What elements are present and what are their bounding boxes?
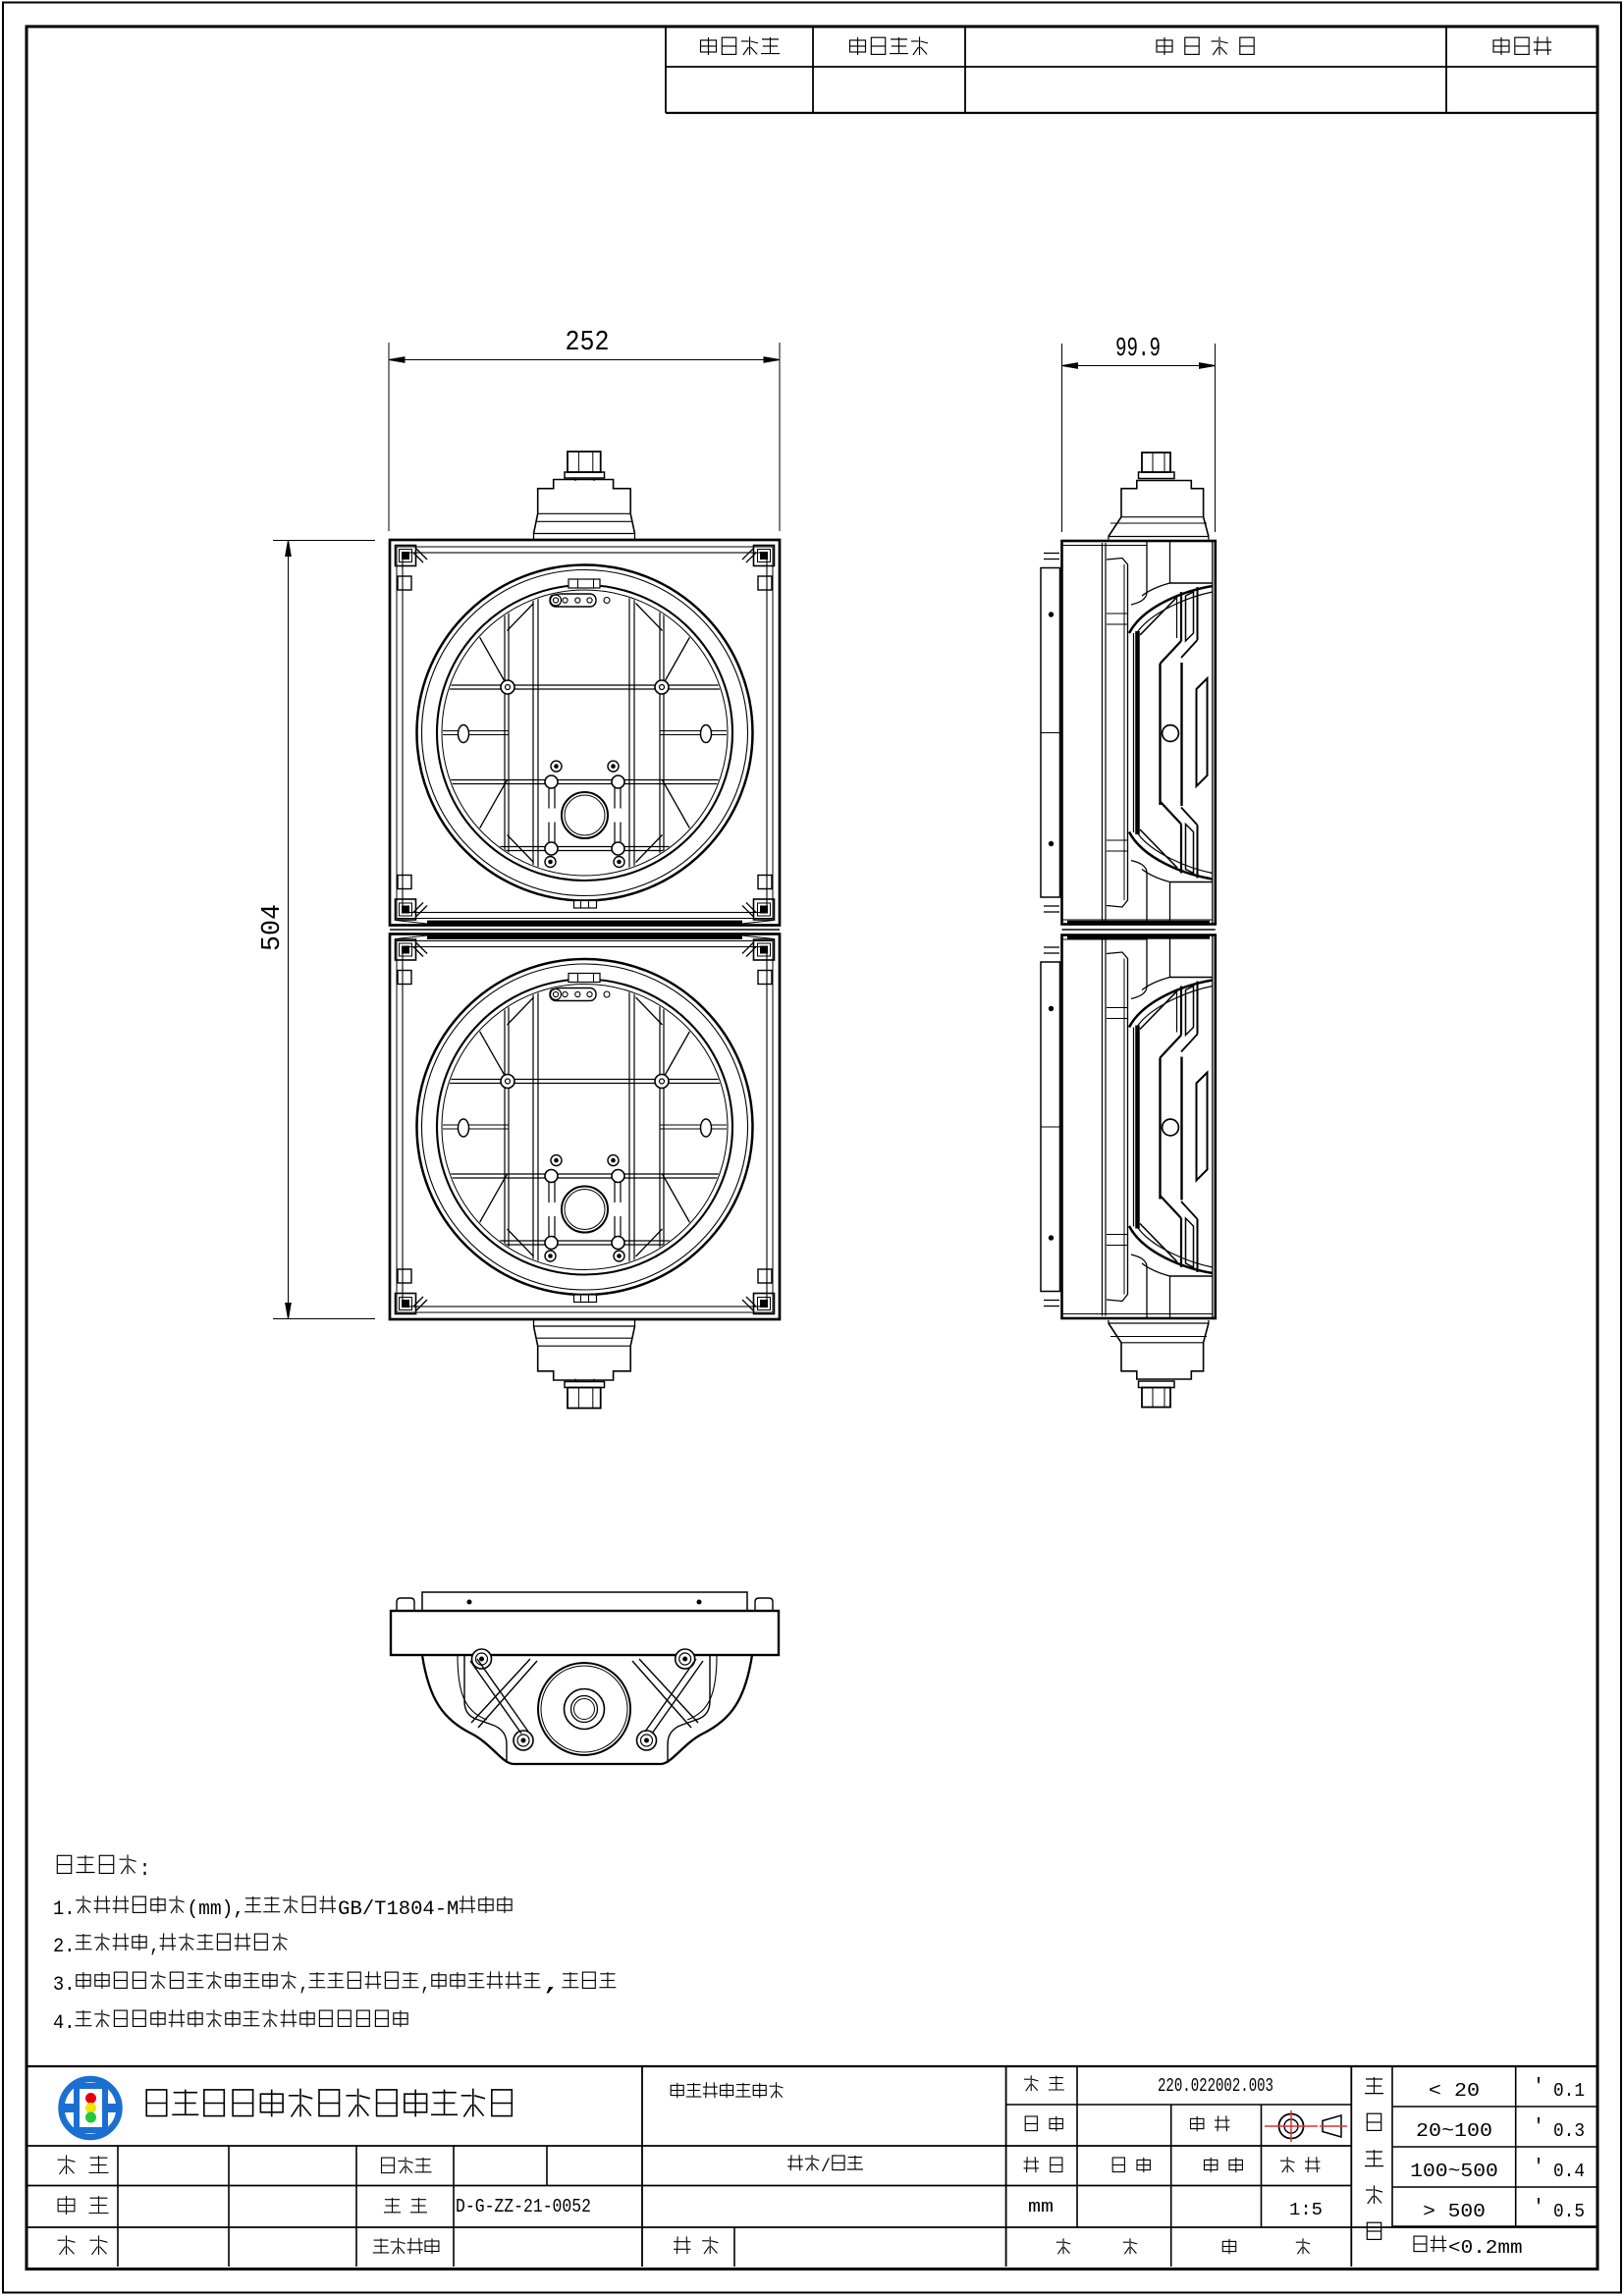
svg-text:1.: 1. (53, 1898, 75, 1921)
svg-text:504: 504 (258, 904, 288, 951)
svg-text:,: , (542, 1974, 562, 1997)
svg-text:4.: 4. (53, 2012, 75, 2035)
svg-text:GB/T1804-M: GB/T1804-M (338, 1898, 459, 1921)
svg-text:0.3: 0.3 (1553, 2120, 1585, 2142)
svg-text:0.5: 0.5 (1553, 2201, 1585, 2222)
svg-text:(mm),: (mm), (187, 1898, 244, 1921)
svg-text:252: 252 (566, 326, 610, 358)
svg-text:99.9: 99.9 (1115, 335, 1161, 364)
svg-text:2.: 2. (53, 1936, 75, 1958)
svg-text:20~100: 20~100 (1416, 2120, 1492, 2142)
svg-text:': ' (1533, 2116, 1544, 2139)
svg-text:,: , (149, 1936, 159, 1958)
svg-text:,: , (298, 1974, 308, 1997)
svg-text:': ' (1533, 2197, 1544, 2219)
svg-text:1:5: 1:5 (1289, 2201, 1323, 2220)
svg-text:> 500: > 500 (1423, 2201, 1486, 2222)
svg-text:0.1: 0.1 (1553, 2080, 1585, 2102)
svg-text:,: , (420, 1974, 430, 1997)
svg-text:3.: 3. (53, 1974, 75, 1997)
svg-text:< 20: < 20 (1429, 2080, 1480, 2102)
svg-text:<0.2mm: <0.2mm (1448, 2237, 1523, 2259)
svg-text:': ' (1533, 2157, 1544, 2179)
svg-text:100~500: 100~500 (1410, 2161, 1498, 2182)
svg-text:/: / (821, 2158, 831, 2177)
svg-text::: : (139, 1857, 150, 1882)
svg-text:220.022002.003: 220.022002.003 (1158, 2075, 1273, 2097)
svg-text:D-G-ZZ-21-0052: D-G-ZZ-21-0052 (456, 2196, 591, 2217)
svg-text:0.4: 0.4 (1553, 2161, 1585, 2182)
svg-text:': ' (1533, 2076, 1544, 2099)
svg-text:mm: mm (1028, 2198, 1054, 2217)
